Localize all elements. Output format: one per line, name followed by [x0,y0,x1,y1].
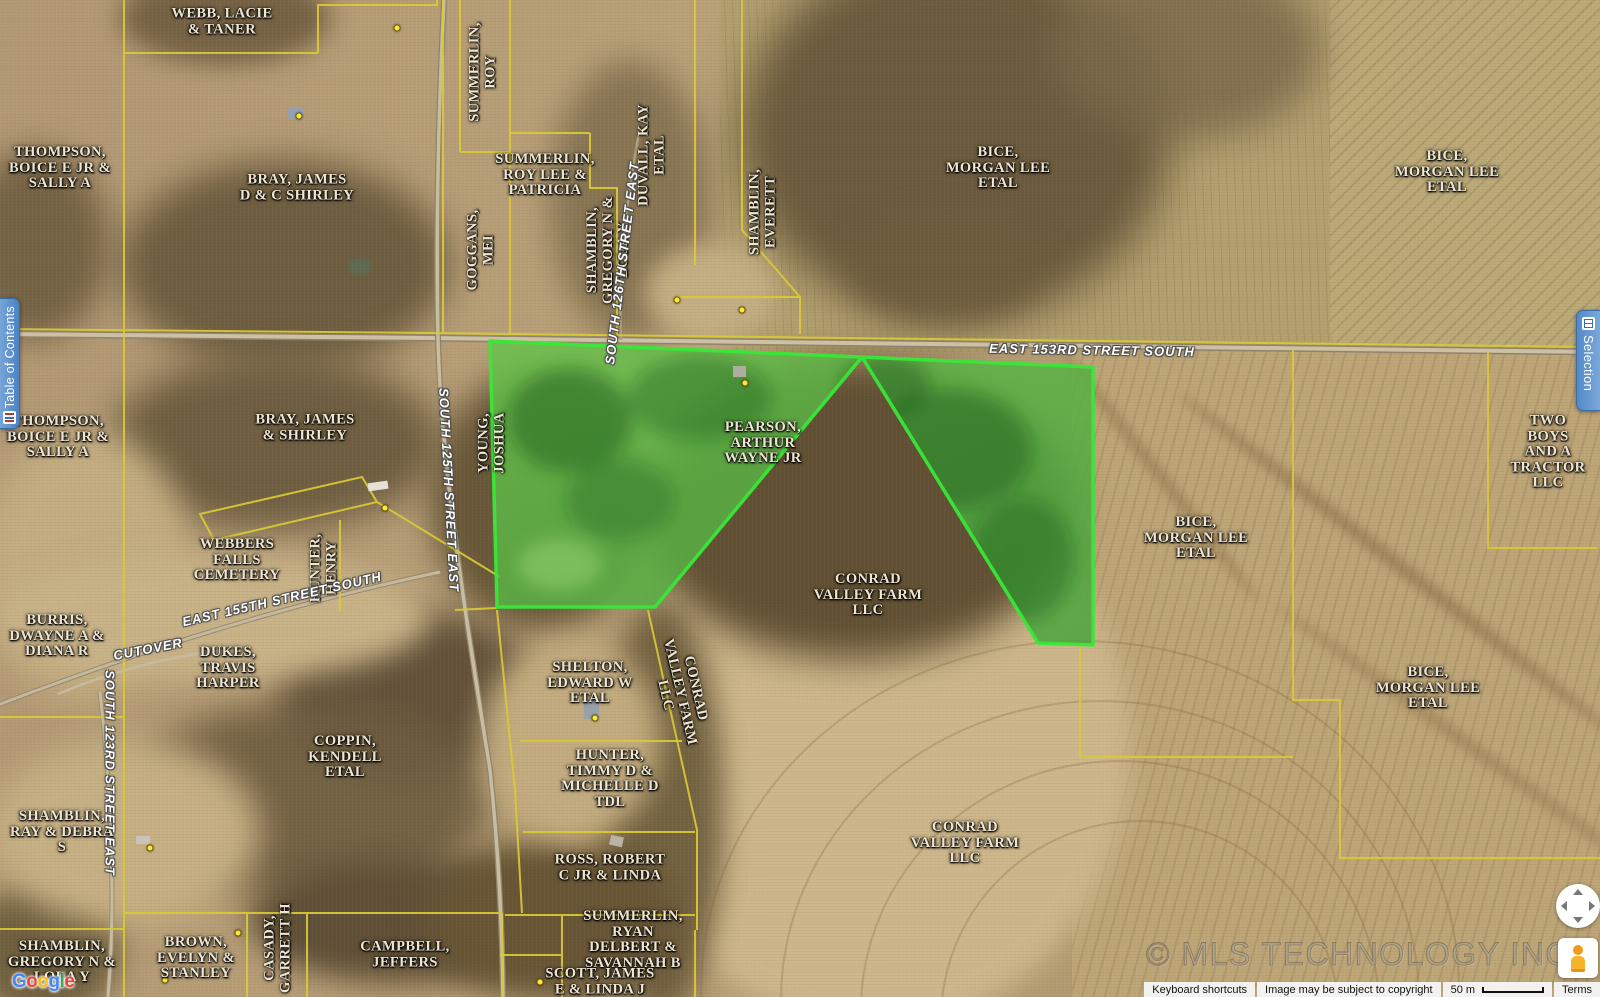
parcel-label: CONRAD VALLEY FARM LLC [814,572,922,619]
point-marker [592,715,599,722]
parcel-label: CONRAD VALLEY FARM LLC [911,820,1019,867]
scale-label: 50 m [1451,984,1475,996]
map-viewport[interactable]: WEBB, LACIE & TANERTHOMPSON, BOICE E JR … [0,0,1600,997]
parcel-boundaries [0,0,1600,997]
pan-control[interactable] [1556,884,1600,928]
table-of-contents-icon [3,411,16,424]
scale-control: 50 m [1443,982,1552,997]
parcel-label: SHAMBLIN, RAY & DEBRA S [10,809,114,856]
point-marker [742,380,749,387]
parcel-label: YOUNG, JOSHUA [477,412,508,473]
selection-tab-label: Selection [1581,335,1596,391]
parcel-label: BURRIS, DWAYNE A & DIANA R [9,613,104,660]
parcel-label: GOGGANS, MEI [466,210,497,291]
parcel-label: TWO BOYS AND A TRACTOR LLC [1510,413,1585,491]
parcel-label: BRAY, JAMES D & C SHIRLEY [240,173,354,204]
copyright-notice: Image may be subject to copyright [1257,982,1441,997]
pan-up-icon[interactable] [1573,889,1583,895]
selection-icon [1582,317,1595,330]
point-marker [296,113,303,120]
pegman-control[interactable] [1558,938,1598,978]
mls-watermark: © MLS TECHNOLOGY INC 2026 [1146,936,1600,973]
parcel-label: DUKES, TRAVIS HARPER [196,645,260,692]
point-marker [382,505,389,512]
parcel-label: DUVALL, KAY ETAL [637,104,668,206]
parcel-label: WEBB, LACIE & TANER [171,7,272,38]
parcel-label: HUNTER, TIMMY D & MICHELLE D TDL [561,748,659,810]
pan-right-icon[interactable] [1589,901,1595,911]
point-marker [235,930,242,937]
terms-link[interactable]: Terms [1554,982,1600,997]
parcel-label: CAMPBELL, JEFFERS [360,940,449,971]
point-marker [147,845,154,852]
parcel-label: BICE, MORGAN LEE ETAL [946,145,1050,192]
parcel-label: SUMMERLIN, RYAN DELBERT & SAVANNAH B [583,909,682,971]
parcel-label: SHAMBLIN, EVERETT [748,169,779,255]
point-marker [674,297,681,304]
road-label: SOUTH 123RD STREET EAST [103,670,118,876]
parcel-label: BICE, MORGAN LEE ETAL [1144,515,1248,562]
parcel-label: BRAY, JAMES & SHIRLEY [255,413,354,444]
parcel-label: BICE, MORGAN LEE ETAL [1376,665,1480,712]
table-of-contents-tab-label: Table of Contents [3,306,17,408]
pan-left-icon[interactable] [1561,901,1567,911]
parcel-label: THOMPSON, BOICE E JR & SALLY A [9,145,111,192]
point-marker [537,979,544,986]
table-of-contents-tab[interactable]: Table of Contents [0,298,20,429]
parcel-label: SUMMERLIN, ROY [468,22,499,121]
parcel-label: ROSS, ROBERT C JR & LINDA [555,853,666,884]
parcel-label: WEBBERS FALLS CEMETERY [194,537,280,584]
parcel-label: PEARSON, ARTHUR WAYNE JR [724,420,801,467]
google-logo[interactable]: Google [12,971,74,993]
pan-down-icon[interactable] [1573,917,1583,923]
point-marker [394,25,401,32]
keyboard-shortcuts-link[interactable]: Keyboard shortcuts [1144,982,1255,997]
parcel-label: SHELTON, EDWARD W ETAL [547,660,633,707]
pegman-icon [1573,945,1583,955]
point-marker [739,307,746,314]
parcel-label: CASADY, GARRETT H [263,903,294,993]
attribution-bar: Keyboard shortcuts Image may be subject … [1144,982,1600,997]
scale-ruler [1482,987,1544,993]
highlighted-parcel[interactable] [490,341,1093,645]
parcel-label: COPPIN, KENDELL ETAL [308,734,382,781]
parcel-label: BROWN, EVELYN & STANLEY [157,935,235,982]
parcel-label: THOMPSON, BOICE E JR & SALLY A [7,414,109,461]
parcel-label: SUMMERLIN, ROY LEE & PATRICIA [495,152,594,199]
parcel-label: SCOTT, JAMES E & LINDA J [545,967,654,997]
selection-tab[interactable]: Selection [1576,310,1600,411]
parcel-label: BICE, MORGAN LEE ETAL [1395,149,1499,196]
